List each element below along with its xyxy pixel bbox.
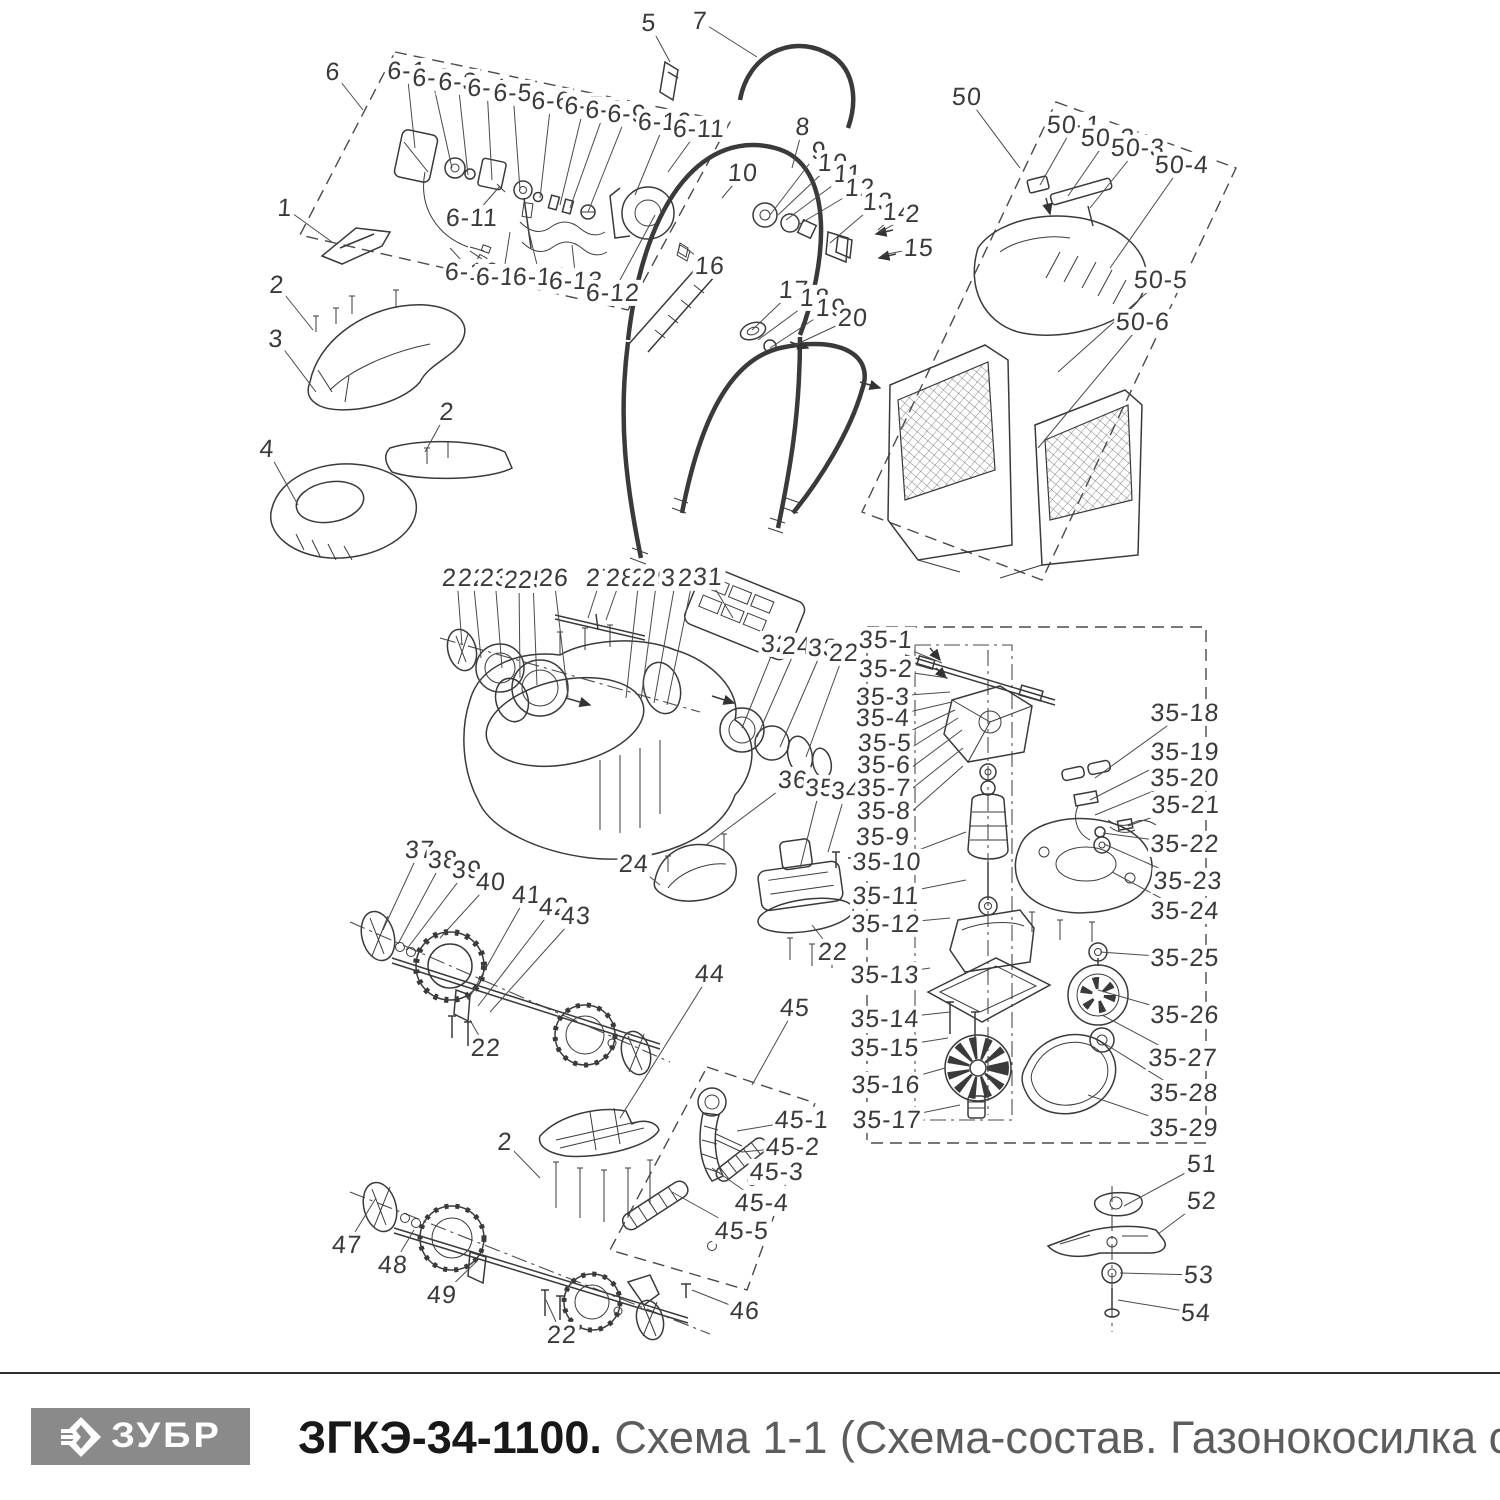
zubr-bison-icon — [59, 1415, 103, 1459]
part-label-50-6: 50-6 — [1113, 309, 1173, 335]
footer-divider — [0, 1372, 1500, 1374]
part-label-6-11: 6-11 — [670, 116, 728, 142]
part-label-35-2: 35-2 — [856, 656, 916, 682]
part-label-35-17: 35-17 — [850, 1107, 925, 1133]
part-label-35-8: 35-8 — [854, 798, 914, 824]
part-label-45-4: 45-4 — [732, 1190, 792, 1216]
part-label-35-9: 35-9 — [853, 824, 913, 850]
part-label-22: 22 — [544, 1322, 580, 1348]
part-label-31: 31 — [690, 564, 726, 590]
part-label-43: 43 — [558, 903, 594, 929]
part-label-35-13: 35-13 — [848, 962, 923, 988]
part-label-35-28: 35-28 — [1147, 1080, 1222, 1106]
part-label-54: 54 — [1178, 1300, 1214, 1326]
part-label-49: 49 — [424, 1282, 460, 1308]
part-label-50-5: 50-5 — [1131, 267, 1191, 293]
part-label-35-24: 35-24 — [1148, 898, 1223, 924]
part-label-24: 24 — [616, 851, 652, 877]
part-label-22: 22 — [815, 939, 851, 965]
part-label-35-21: 35-21 — [1149, 792, 1224, 818]
part-label-35-27: 35-27 — [1146, 1045, 1221, 1071]
part-label-2: 2 — [903, 201, 924, 227]
part-label-6-11: 6-11 — [443, 205, 501, 231]
part-label-4: 4 — [257, 436, 278, 462]
part-label-51: 51 — [1184, 1151, 1220, 1177]
part-label-45-5: 45-5 — [712, 1218, 772, 1244]
part-label-8: 8 — [793, 114, 814, 140]
brand-logo: ЗУБР — [31, 1408, 250, 1465]
part-label-2: 2 — [267, 272, 288, 298]
part-label-6-12: 6-12 — [583, 280, 643, 306]
part-label-35-23: 35-23 — [1151, 868, 1226, 894]
part-label-35-12: 35-12 — [849, 911, 924, 937]
part-label-35-15: 35-15 — [848, 1035, 923, 1061]
part-label-35-22: 35-22 — [1148, 831, 1223, 857]
model-number: ЗГКЭ-34-1100. — [298, 1412, 602, 1463]
part-label-1: 1 — [275, 195, 296, 221]
part-label-35-26: 35-26 — [1148, 1002, 1223, 1028]
part-label-48: 48 — [375, 1252, 411, 1278]
part-label-40: 40 — [473, 869, 509, 895]
part-label-3: 3 — [266, 326, 287, 352]
part-label-50: 50 — [949, 84, 985, 110]
part-label-35-11: 35-11 — [850, 883, 923, 909]
part-label-45: 45 — [777, 995, 813, 1021]
part-label-2: 2 — [495, 1129, 516, 1155]
part-label-35-4: 35-4 — [853, 705, 913, 731]
part-labels: 66-16-26-36-46-56-66-76-86-96-106-116-11… — [0, 0, 1500, 1500]
part-label-2: 2 — [437, 399, 458, 425]
part-label-7: 7 — [690, 8, 711, 34]
part-label-6: 6 — [323, 59, 344, 85]
part-label-44: 44 — [692, 961, 728, 987]
part-label-35-29: 35-29 — [1147, 1115, 1222, 1141]
part-label-35-1: 35-1 — [856, 627, 916, 653]
part-label-35-20: 35-20 — [1148, 765, 1223, 791]
part-label-35-18: 35-18 — [1148, 700, 1223, 726]
brand-name: ЗУБР — [111, 1417, 222, 1457]
part-label-20: 20 — [835, 305, 871, 331]
part-label-47: 47 — [329, 1232, 365, 1258]
part-label-10: 10 — [725, 160, 761, 186]
part-label-50-4: 50-4 — [1152, 152, 1212, 178]
part-label-26: 26 — [536, 565, 572, 591]
part-label-53: 53 — [1181, 1262, 1217, 1288]
part-label-22: 22 — [468, 1035, 504, 1061]
part-label-35-14: 35-14 — [848, 1006, 923, 1032]
part-label-35-19: 35-19 — [1148, 739, 1223, 765]
part-label-52: 52 — [1184, 1188, 1220, 1214]
part-label-16: 16 — [692, 253, 728, 279]
part-label-35-16: 35-16 — [849, 1072, 924, 1098]
part-label-5: 5 — [639, 10, 660, 36]
parts-diagram-page: 66-16-26-36-46-56-66-76-86-96-106-116-11… — [0, 0, 1500, 1500]
schema-subtitle: Схема 1-1 (Схема-состав. Газонокосилка с… — [602, 1412, 1500, 1463]
part-label-45-3: 45-3 — [747, 1159, 807, 1185]
part-label-35-25: 35-25 — [1148, 945, 1223, 971]
schema-title: ЗГКЭ-34-1100. Схема 1-1 (Схема-состав. Г… — [298, 1412, 1500, 1462]
part-label-35-10: 35-10 — [850, 849, 925, 875]
part-label-45-1: 45-1 — [772, 1107, 832, 1133]
part-label-45-2: 45-2 — [763, 1134, 823, 1160]
part-label-15: 15 — [901, 235, 937, 261]
part-label-46: 46 — [727, 1298, 763, 1324]
